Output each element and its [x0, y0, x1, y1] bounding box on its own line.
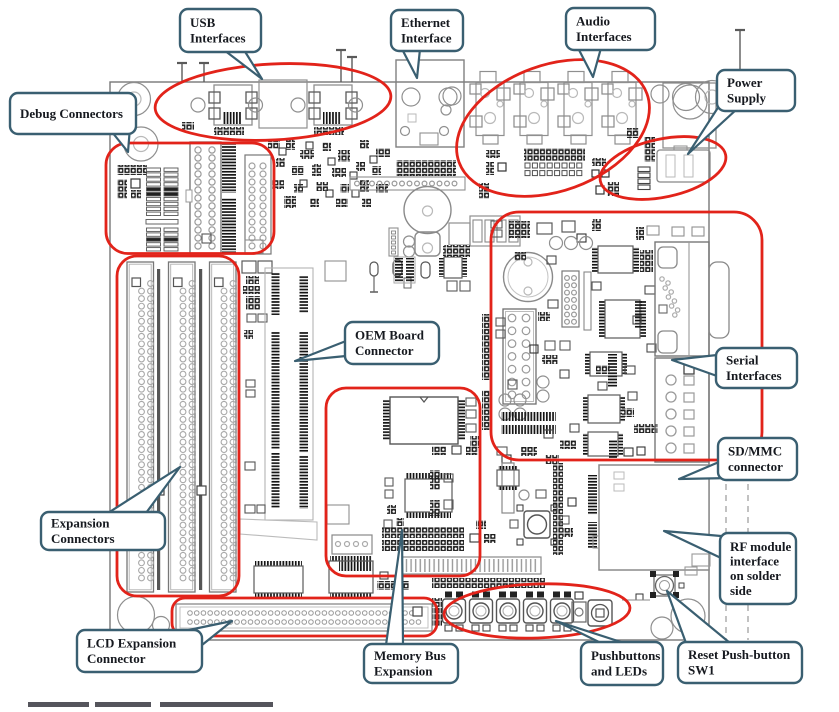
- svg-text:PowerSupply: PowerSupply: [727, 75, 767, 106]
- svg-text:Debug Connectors: Debug Connectors: [20, 106, 123, 121]
- svg-text:ExpansionConnectors: ExpansionConnectors: [51, 516, 115, 547]
- svg-text:EthernetInterface: EthernetInterface: [401, 15, 452, 45]
- svg-text:SD/MMCconnector: SD/MMCconnector: [728, 444, 783, 475]
